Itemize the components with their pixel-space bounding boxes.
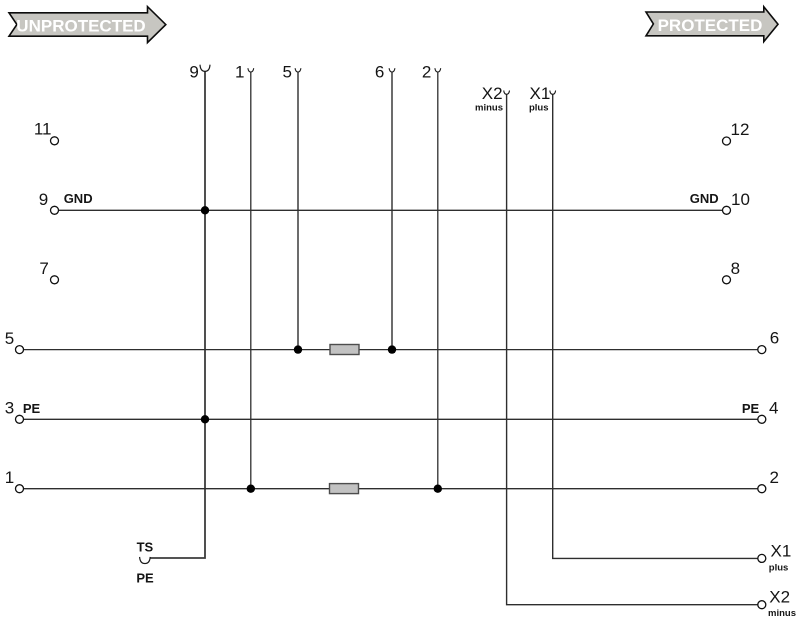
svg-text:2: 2: [422, 63, 431, 82]
svg-text:1: 1: [235, 63, 244, 82]
svg-text:PE: PE: [23, 401, 41, 416]
svg-text:8: 8: [731, 259, 740, 278]
svg-text:TS: TS: [137, 539, 154, 554]
svg-text:9: 9: [189, 63, 198, 82]
svg-text:minus: minus: [475, 103, 503, 114]
svg-text:PE: PE: [742, 401, 760, 416]
svg-text:GND: GND: [64, 191, 93, 206]
svg-text:5: 5: [5, 329, 14, 348]
svg-text:12: 12: [731, 120, 750, 139]
svg-text:9: 9: [39, 190, 48, 209]
svg-text:X2: X2: [769, 587, 790, 606]
svg-text:3: 3: [5, 399, 14, 418]
svg-text:11: 11: [34, 120, 52, 139]
svg-text:X1: X1: [530, 84, 551, 103]
svg-text:X1: X1: [771, 541, 792, 560]
svg-text:7: 7: [39, 259, 48, 278]
svg-text:UNPROTECTED: UNPROTECTED: [16, 16, 145, 35]
svg-text:2: 2: [770, 468, 779, 487]
svg-text:PROTECTED: PROTECTED: [658, 16, 763, 35]
svg-text:1: 1: [5, 468, 14, 487]
svg-text:GND: GND: [690, 191, 719, 206]
svg-text:PE: PE: [136, 571, 154, 586]
svg-text:plus: plus: [529, 103, 549, 114]
svg-text:plus: plus: [769, 562, 789, 573]
svg-text:4: 4: [769, 399, 778, 418]
svg-text:X2: X2: [482, 84, 503, 103]
svg-text:6: 6: [770, 329, 779, 348]
svg-text:10: 10: [731, 190, 750, 209]
svg-text:minus: minus: [768, 608, 796, 619]
svg-text:6: 6: [375, 63, 384, 82]
svg-text:5: 5: [283, 63, 292, 82]
